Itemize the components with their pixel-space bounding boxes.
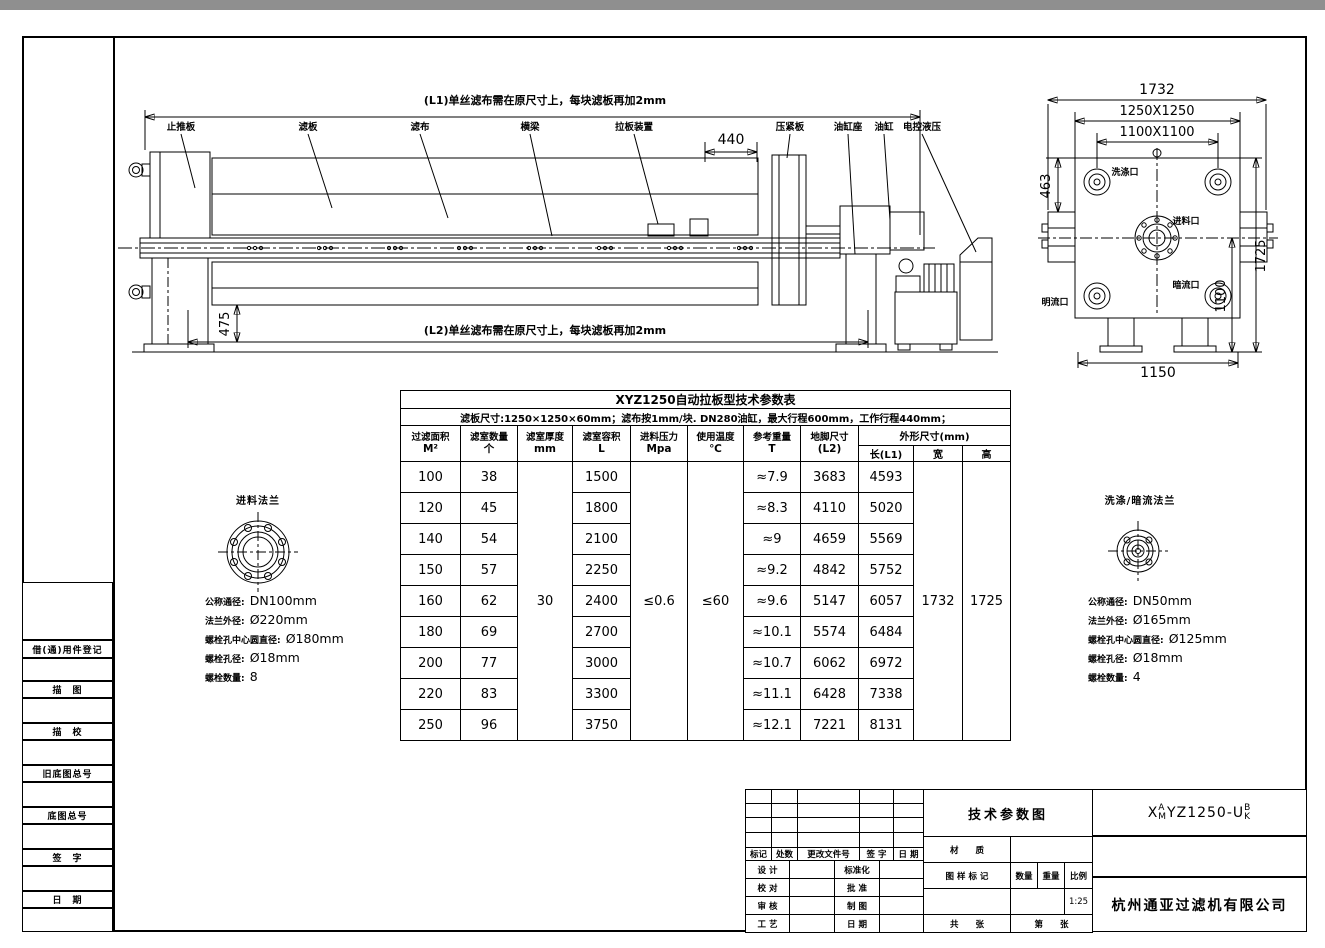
spec-line: 公称通径: DN100mm (205, 592, 344, 611)
cell: 120 (401, 493, 461, 524)
signature-row: 审 核 制 图 (746, 897, 924, 915)
revision-row (746, 833, 924, 848)
table-row: 100 38 30 1500 ≤0.6 ≤60 ≈7.9 3683 4593 1… (401, 462, 1011, 493)
cell-merged: ≤60 (688, 462, 744, 741)
company-cell: 杭州通亚过滤机有限公司 (1092, 877, 1307, 932)
title-middle-table: 技术参数图 材 质 图 样 标 记 数量 重量 比例 1:25 共 张 第 张 (923, 789, 1093, 933)
cell: ≈11.1 (744, 679, 801, 710)
dim-463-text: 463 (1039, 174, 1054, 199)
mark-label: 图 样 标 记 (924, 863, 1011, 889)
col-header-overall: 外形尺寸(mm) (859, 426, 1011, 446)
label-wash-port: 洗涤口 (1111, 166, 1138, 178)
wash-flange-title: 洗涤/暗流法兰 (1083, 492, 1197, 507)
col-header: 使用温度℃ (688, 426, 744, 462)
signature-row: 工 艺 日 期 (746, 915, 924, 933)
sheet-count-row: 共 张 第 张 (924, 915, 1093, 933)
spec-line: 螺栓数量: 4 (1088, 668, 1227, 687)
drawing-title: 技术参数图 (924, 790, 1093, 837)
dim-1100sq-text: 1100X1100 (1119, 125, 1194, 140)
signature-row: 校 对 批 准 (746, 879, 924, 897)
qty-label: 数量 (1011, 863, 1038, 889)
rev-header: 日 期 (894, 848, 924, 861)
cell: ≈10.1 (744, 617, 801, 648)
cell: 3300 (573, 679, 631, 710)
wash-flange-drawing (1108, 521, 1168, 581)
qty-weight-value (1011, 889, 1065, 915)
cell: 5574 (801, 617, 859, 648)
label-filter-cloth: 滤布 (410, 121, 430, 133)
title-right-block: X AM YZ1250-U BK 杭州通亚过滤机有限公司 (1092, 789, 1307, 932)
spec-line: 螺栓孔中心圆直径: Ø180mm (205, 630, 344, 649)
dim-1150-text: 1150 (1140, 365, 1176, 381)
spec-table: XYZ1250自动拉板型技术参数表 滤板尺寸:1250×1250×60mm；滤布… (400, 390, 1011, 741)
sign-label: 校 对 (746, 879, 790, 897)
mark-boxes (924, 889, 1011, 915)
code-stack: BK (1244, 804, 1251, 822)
cell: 6972 (859, 648, 914, 679)
note-l2: (L2)单丝滤布需在原尺寸上，每块滤板再加2mm (424, 323, 666, 337)
cell: ≈12.1 (744, 710, 801, 741)
cell: 6484 (859, 617, 914, 648)
cell-merged: 30 (518, 462, 573, 741)
cell-merged: ≤0.6 (631, 462, 688, 741)
margin-spacer-box (22, 582, 113, 640)
feed-flange-title: 进料法兰 (208, 492, 308, 507)
margin-label-signature: 签 字 (22, 849, 113, 866)
cell: 83 (461, 679, 518, 710)
margin-label-date: 日 期 (22, 891, 113, 908)
cell: 6057 (859, 586, 914, 617)
scale-label: 比例 (1065, 863, 1093, 889)
total-sheets-label: 共 张 (924, 915, 1011, 933)
spec-line: 公称通径: DN50mm (1088, 592, 1227, 611)
cell: 4842 (801, 555, 859, 586)
table-header-row: 过滤面积M² 滤室数量个 滤室厚度mm 滤室容积L 进料压力Mpa 使用温度℃ … (401, 426, 1011, 446)
label-hydraulic: 电控液压 (903, 121, 942, 133)
cell: 62 (461, 586, 518, 617)
cell: 2250 (573, 555, 631, 586)
cell: ≈9.2 (744, 555, 801, 586)
cell: 2700 (573, 617, 631, 648)
spec-line: 法兰外径: Ø220mm (205, 611, 344, 630)
feed-pipe-fittings (129, 163, 150, 299)
hydraulic-unit (895, 259, 957, 350)
cell: 5752 (859, 555, 914, 586)
margin-label-reuse: 借(通)用件登记 (22, 640, 113, 658)
cell: 69 (461, 617, 518, 648)
col-header: 滤室数量个 (461, 426, 518, 462)
col-header: 滤室厚度mm (518, 426, 573, 462)
cell: 7338 (859, 679, 914, 710)
spec-line: 螺栓数量: 8 (205, 668, 344, 687)
col-header: 进料压力Mpa (631, 426, 688, 462)
label-open-port: 明流口 (1041, 296, 1068, 308)
cell: 100 (401, 462, 461, 493)
col-header: 滤室容积L (573, 426, 631, 462)
drawing-code-cell: X AM YZ1250-U BK (1092, 789, 1307, 836)
material-row: 材 质 (924, 837, 1093, 863)
margin-label-master-no: 底图总号 (22, 807, 113, 824)
material-value (1011, 837, 1093, 863)
cell: 7221 (801, 710, 859, 741)
label-filter-plate: 滤板 (298, 121, 318, 133)
revision-row (746, 818, 924, 833)
spec-line: 螺栓孔中心圆直径: Ø125mm (1088, 630, 1227, 649)
cell: 180 (401, 617, 461, 648)
table-title-row: XYZ1250自动拉板型技术参数表 (401, 391, 1011, 409)
revision-row (746, 790, 924, 804)
end-view: 洗涤口 进料口 暗流口 明流口 1732 1250X1250 1100X1100… (1038, 82, 1278, 381)
rev-header: 更改文件号 (798, 848, 860, 861)
col-header: 高 (963, 446, 1011, 462)
side-view: (L1)单丝滤布需在原尺寸上，每块滤板再加2mm 440 止推板 滤板 滤布 横… (118, 93, 998, 352)
cell: 4593 (859, 462, 914, 493)
sign-label: 设 计 (746, 861, 790, 879)
cell: ≈8.3 (744, 493, 801, 524)
cell: 77 (461, 648, 518, 679)
col-header: 长(L1) (859, 446, 914, 462)
cell: 96 (461, 710, 518, 741)
cell: 57 (461, 555, 518, 586)
cell: 1800 (573, 493, 631, 524)
sign-label: 制 图 (835, 897, 880, 915)
cell-merged: 1732 (914, 462, 963, 741)
cell: 3000 (573, 648, 631, 679)
dim-440-text: 440 (718, 132, 745, 148)
cell: 3683 (801, 462, 859, 493)
drawing-title-row: 技术参数图 (924, 790, 1093, 837)
cell: ≈9.6 (744, 586, 801, 617)
cell: 54 (461, 524, 518, 555)
material-label: 材 质 (924, 837, 1011, 863)
col-header: 宽 (914, 446, 963, 462)
cell: 200 (401, 648, 461, 679)
cell: 6062 (801, 648, 859, 679)
col-header: 过滤面积M² (401, 426, 461, 462)
dim-1250-text: 1250X1250 (1119, 104, 1194, 119)
table-title: XYZ1250自动拉板型技术参数表 (401, 391, 1011, 409)
drawing-code: X AM YZ1250-U BK (1148, 804, 1252, 822)
feed-flange-specs: 公称通径: DN100mm 法兰外径: Ø220mm 螺栓孔中心圆直径: Ø18… (205, 592, 344, 687)
cell: 2400 (573, 586, 631, 617)
rev-header: 标记 (746, 848, 772, 861)
sign-label: 工 艺 (746, 915, 790, 933)
margin-spacer-box (22, 866, 113, 891)
sign-label: 日 期 (835, 915, 880, 933)
col-header: 参考重量T (744, 426, 801, 462)
cell: 1500 (573, 462, 631, 493)
cell: 3750 (573, 710, 631, 741)
margin-label-old-master-no: 旧底图总号 (22, 765, 113, 782)
cell: 220 (401, 679, 461, 710)
mark-value-row: 1:25 (924, 889, 1093, 915)
table-subtitle-row: 滤板尺寸:1250×1250×60mm；滤布按1mm/块. DN280油缸，最大… (401, 409, 1011, 426)
cell: 4659 (801, 524, 859, 555)
blank-cell (1092, 836, 1307, 877)
sign-label: 批 准 (835, 879, 880, 897)
dim-1732-text: 1732 (1139, 82, 1175, 98)
margin-label-tracing: 描 图 (22, 681, 113, 698)
cell: ≈7.9 (744, 462, 801, 493)
cell: 6428 (801, 679, 859, 710)
revision-row (746, 804, 924, 818)
company-name: 杭州通亚过滤机有限公司 (1112, 895, 1288, 915)
weight-label: 重量 (1038, 863, 1065, 889)
margin-spacer-box (22, 740, 113, 765)
spec-line: 螺栓孔径: Ø18mm (205, 649, 344, 668)
label-plate-shifter: 拉板装置 (615, 121, 654, 133)
signature-table: 设 计 标准化 校 对 批 准 审 核 制 图 工 艺 日 期 (745, 860, 924, 933)
cell: 45 (461, 493, 518, 524)
col-header: 地脚尺寸(L2) (801, 426, 859, 462)
revision-header-row: 标记 处数 更改文件号 签 字 日 期 (746, 848, 924, 861)
dim-475-text: 475 (218, 312, 233, 337)
table-subtitle: 滤板尺寸:1250×1250×60mm；滤布按1mm/块. DN280油缸，最大… (401, 409, 1011, 426)
cell: 38 (461, 462, 518, 493)
dim-1100-text: 1100 (1214, 279, 1229, 312)
sign-label: 标准化 (835, 861, 880, 879)
cell: 250 (401, 710, 461, 741)
rev-header: 处数 (772, 848, 798, 861)
label-press-plate: 压紧板 (776, 121, 805, 133)
label-feed-port: 进料口 (1172, 215, 1199, 227)
rev-header: 签 字 (860, 848, 894, 861)
label-thrust-plate: 止推板 (167, 121, 196, 133)
cell: 5569 (859, 524, 914, 555)
label-beam: 横梁 (520, 121, 540, 133)
signature-row: 设 计 标准化 (746, 861, 924, 879)
cell: 140 (401, 524, 461, 555)
spec-line: 法兰外径: Ø165mm (1088, 611, 1227, 630)
margin-spacer-box (22, 658, 113, 681)
cell: 8131 (859, 710, 914, 741)
spec-line: 螺栓孔径: Ø18mm (1088, 649, 1227, 668)
margin-spacer-box (22, 698, 113, 723)
dim-1725-text: 1725 (1254, 239, 1269, 272)
code-stack: AM (1158, 804, 1167, 822)
margin-spacer-box (22, 824, 113, 849)
scale-value: 1:25 (1065, 889, 1093, 915)
label-cylinder: 油缸 (874, 121, 894, 133)
mark-header-row: 图 样 标 记 数量 重量 比例 (924, 863, 1093, 889)
wash-flange-specs: 公称通径: DN50mm 法兰外径: Ø165mm 螺栓孔中心圆直径: Ø125… (1088, 592, 1227, 687)
label-dark-port: 暗流口 (1172, 279, 1199, 291)
cell: 4110 (801, 493, 859, 524)
cell: 5147 (801, 586, 859, 617)
revision-table: 标记 处数 更改文件号 签 字 日 期 (745, 789, 924, 861)
cell: 150 (401, 555, 461, 586)
cell: ≈10.7 (744, 648, 801, 679)
margin-spacer-box (22, 908, 113, 932)
cell: ≈9 (744, 524, 801, 555)
cell: 2100 (573, 524, 631, 555)
feed-flange-drawing (218, 512, 298, 592)
note-l1: (L1)单丝滤布需在原尺寸上，每块滤板再加2mm (424, 93, 666, 107)
margin-spacer-box (22, 782, 113, 807)
cell: 5020 (859, 493, 914, 524)
sign-label: 审 核 (746, 897, 790, 915)
cell: 160 (401, 586, 461, 617)
cell-merged: 1725 (963, 462, 1011, 741)
label-cylinder-seat: 油缸座 (834, 121, 863, 133)
sheet-no-label: 第 张 (1011, 915, 1093, 933)
margin-label-trace-check: 描 校 (22, 723, 113, 740)
